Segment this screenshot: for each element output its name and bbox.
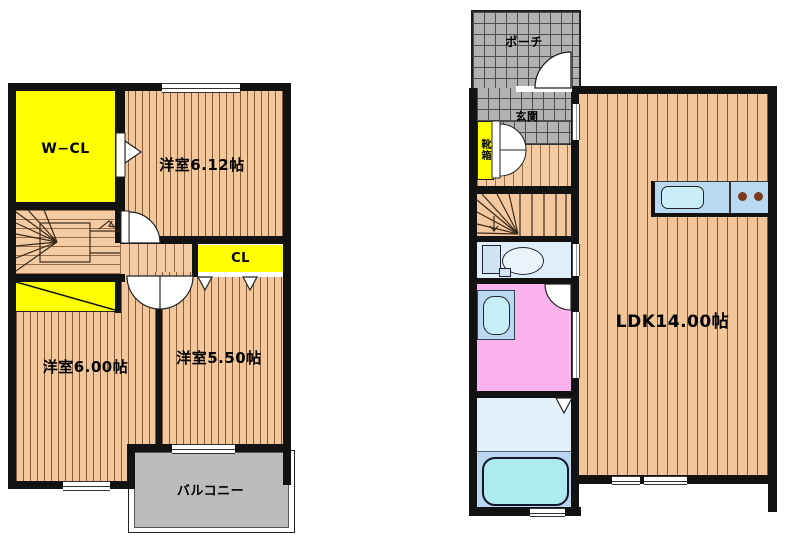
wall: [8, 83, 291, 91]
room-label-bed1: 洋室6.12帖: [121, 91, 283, 238]
ldk-room: [577, 94, 768, 475]
stairs-area-2f: [16, 210, 120, 276]
door-opening: [572, 244, 580, 276]
floorplan-canvas: W−CL 洋室6.12帖 CL 洋室6.00帖 洋室5.50帖 バルコニー: [0, 0, 800, 552]
entrance-threshold: [516, 86, 572, 92]
window-marker: [530, 508, 565, 517]
entrance-tataki-lower: [492, 121, 577, 145]
stove-burner: [738, 192, 747, 201]
wall: [8, 83, 16, 489]
stairs-area-1f: [477, 194, 571, 236]
room-label-bed2: 洋室6.00帖: [16, 276, 155, 457]
room-label-entrance: 玄関: [477, 108, 577, 124]
wall: [477, 391, 571, 398]
stove-burner: [754, 192, 763, 201]
window-marker: [612, 476, 640, 485]
room-label-porch: ポーチ: [471, 10, 577, 72]
vanity-basin: [483, 296, 510, 335]
wall: [283, 83, 291, 485]
wall: [571, 86, 579, 516]
kitchen-sink: [661, 186, 704, 209]
wall: [577, 86, 777, 94]
window-marker: [644, 476, 687, 485]
room-label-ldk: LDK14.00帖: [577, 308, 768, 330]
room-label-wcl: W−CL: [16, 91, 115, 206]
bathtub: [482, 457, 569, 506]
wall: [768, 86, 777, 512]
kitchen-counter-divider: [729, 182, 731, 213]
wall: [477, 278, 571, 284]
window-marker: [63, 481, 110, 491]
wall: [477, 236, 571, 242]
room-label-shoebox: 靴箱: [477, 121, 492, 178]
wall: [469, 186, 571, 194]
room-label-cl: CL: [198, 245, 283, 272]
room-label-bed3: 洋室5.50帖: [155, 272, 283, 442]
wall: [469, 88, 477, 516]
toilet-flush: [499, 268, 511, 277]
room-label-balcony: バルコニー: [134, 452, 287, 526]
bathroom-floor: [477, 398, 571, 451]
